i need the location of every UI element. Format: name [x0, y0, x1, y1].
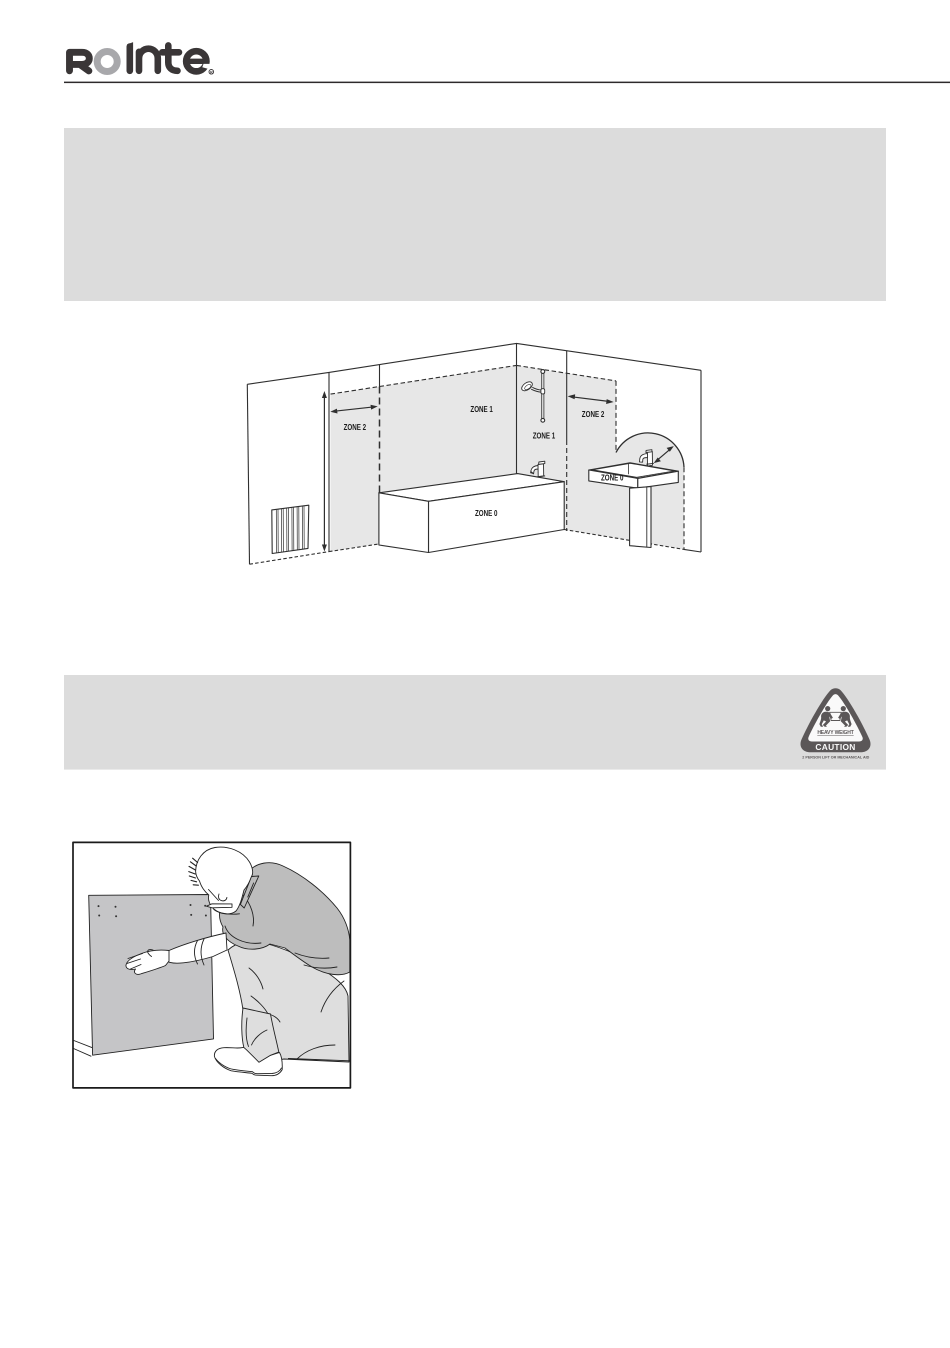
svg-text:ZONE 0: ZONE 0	[601, 474, 623, 483]
svg-text:ZONE 0: ZONE 0	[475, 509, 497, 518]
svg-text:2 PERSON LIFT OR MECHANICAL AI: 2 PERSON LIFT OR MECHANICAL AID	[802, 755, 869, 759]
svg-text:ZONE 1: ZONE 1	[470, 405, 492, 414]
svg-text:ZONE 1: ZONE 1	[533, 432, 555, 441]
svg-text:HEAVY WEIGHT: HEAVY WEIGHT	[817, 730, 853, 736]
svg-text:ZONE 2: ZONE 2	[582, 410, 604, 419]
svg-text:CAUTION: CAUTION	[815, 742, 855, 752]
svg-text:R: R	[210, 70, 213, 74]
svg-text:ZONE 2: ZONE 2	[344, 424, 366, 433]
